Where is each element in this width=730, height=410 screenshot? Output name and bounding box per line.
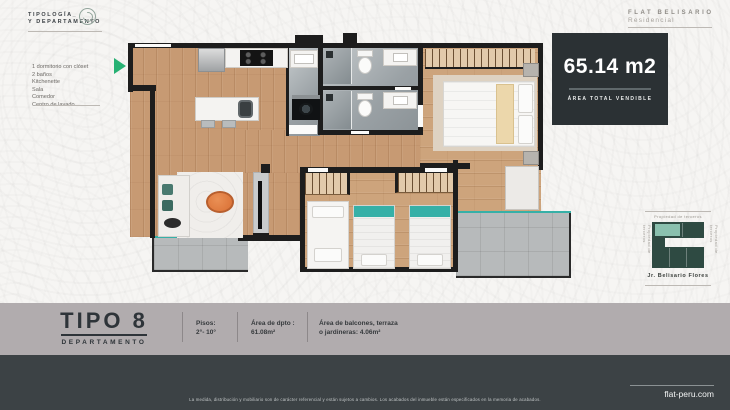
bed-throw	[496, 84, 514, 144]
poster: TIPOLOGÍA_ Y DEPARTAMENTO 1 dormitorio c…	[0, 0, 730, 410]
spec-value: 61.08m²	[251, 328, 295, 337]
list-item: Sala	[32, 87, 88, 95]
spec-label: Área de dpto :	[251, 319, 295, 328]
list-item: 2 baños	[32, 72, 88, 80]
list-item: Kitchenette	[32, 79, 88, 87]
total-area-caption: ÁREA TOTAL VENDIBLE	[552, 96, 668, 102]
shower	[323, 91, 352, 129]
closet	[395, 173, 453, 193]
wall-segment	[318, 130, 420, 135]
type-subtitle: DEPARTAMENTO	[58, 339, 150, 346]
pillow	[361, 254, 387, 266]
blanket	[314, 248, 342, 262]
footer-dark-band: La medida, distribución y mobiliario son…	[0, 355, 730, 410]
toilet	[356, 50, 374, 76]
door-opening	[135, 44, 171, 47]
cushion	[162, 200, 173, 211]
toilet-tank	[357, 50, 373, 57]
toilet-bowl	[358, 57, 372, 74]
bed-headboard	[354, 206, 394, 217]
website-rule	[630, 385, 714, 386]
building-footprint	[652, 222, 704, 268]
island-sink	[238, 100, 253, 118]
key-map-rule-bottom	[645, 285, 711, 286]
footer-type-band: TIPO 8 DEPARTAMENTO Pisos: 2°- 10° Área …	[0, 303, 730, 355]
spec-balcony-area: Área de balcones, terraza o jardineras: …	[319, 319, 398, 337]
wall-segment	[343, 33, 357, 48]
sink-basin	[393, 96, 408, 105]
pillow	[518, 115, 533, 144]
sink-basin	[393, 53, 408, 62]
washer-door	[299, 103, 313, 115]
pillow	[518, 84, 533, 113]
shower-fixture	[326, 94, 333, 101]
floor-plan	[113, 33, 575, 281]
master-bed	[443, 81, 535, 147]
balcony-floor	[152, 236, 248, 272]
key-map-right-label: Propiedad de terceros	[709, 225, 719, 269]
wall-segment	[150, 88, 155, 238]
door-opening	[351, 131, 369, 134]
wall-segment	[253, 233, 269, 239]
type-title-rule	[61, 334, 147, 336]
building-bottom-wing	[652, 247, 704, 268]
door-opening	[395, 87, 411, 90]
disclaimer-text: La medida, distribución y mobiliario son…	[0, 397, 730, 402]
stove-cooktop	[240, 50, 273, 66]
unit-divider	[686, 248, 687, 267]
spec-value: 2°- 10°	[196, 328, 216, 337]
laundry-sink-basin	[294, 54, 314, 64]
key-map-rule-top	[645, 211, 711, 212]
spec-value: o jardineras: 4.06m²	[319, 328, 398, 337]
bathroom-sink	[383, 49, 417, 66]
single-bed	[409, 205, 451, 269]
wall-segment	[238, 235, 305, 241]
pillow	[312, 206, 344, 218]
shower-fixture	[326, 51, 333, 58]
nightstand	[523, 151, 539, 165]
nightstand	[523, 63, 539, 77]
brand-block: FLAT BELISARIO Residencial	[628, 10, 714, 28]
list-item: Comedor	[32, 94, 88, 102]
toilet-bowl	[358, 100, 372, 117]
type-block: TIPO 8 DEPARTAMENTO	[58, 309, 150, 346]
shower	[323, 48, 352, 84]
brand-stamp-icon	[79, 8, 96, 25]
area-box: 65.14 m2 ÁREA TOTAL VENDIBLE	[552, 33, 668, 125]
fridge	[198, 48, 225, 72]
website-link[interactable]: flat-peru.com	[630, 389, 714, 399]
door-opening	[308, 168, 328, 172]
brand-subtitle: Residencial	[628, 17, 714, 24]
toilet	[356, 93, 374, 119]
brand-name: FLAT BELISARIO	[628, 10, 714, 16]
unit-divider	[682, 223, 683, 237]
area-box-rule	[569, 88, 651, 90]
spec-apartment-area: Área de dpto : 61.08m²	[251, 319, 295, 337]
sofa	[158, 175, 190, 237]
location-key-map: Propiedad de terceros Propiedad de terce…	[640, 205, 716, 295]
wall-segment	[261, 164, 270, 173]
door-opening	[289, 125, 317, 134]
cushion	[162, 184, 173, 195]
daybed	[307, 201, 349, 269]
tv	[258, 181, 262, 229]
master-closet	[425, 49, 535, 69]
stool	[201, 120, 215, 128]
toilet-tank	[357, 93, 373, 100]
street-label: Jr. Belisario Flores	[640, 273, 716, 279]
spec-label: Pisos:	[196, 319, 216, 328]
spec-label: Área de balcones, terraza	[319, 319, 398, 328]
stamp-swirl-icon	[81, 10, 95, 24]
key-map-top-label: Propiedad de terceros	[640, 214, 716, 219]
list-item: 1 dormitorio con clóset	[32, 64, 88, 72]
bathroom-sink	[383, 92, 417, 109]
spec-divider	[237, 312, 238, 342]
spec-divider	[182, 312, 183, 342]
spec-divider	[307, 312, 308, 342]
pillow	[417, 254, 443, 266]
unit-divider	[669, 248, 670, 267]
cat	[164, 218, 181, 228]
wall-segment	[453, 160, 458, 272]
single-bed	[353, 205, 395, 269]
feature-list: 1 dormitorio con clóset 2 baños Kitchene…	[32, 64, 88, 110]
tv-panel	[253, 172, 269, 238]
stool	[222, 120, 236, 128]
highlighted-unit	[655, 224, 680, 236]
terrace-edge	[456, 211, 571, 213]
feature-rule	[36, 105, 100, 106]
type-title: TIPO 8	[58, 309, 150, 333]
cabinet	[505, 166, 539, 210]
door-opening	[425, 168, 447, 172]
closet	[305, 173, 350, 195]
door-opening	[418, 105, 423, 127]
washing-machine	[292, 95, 320, 120]
key-map-left-label: Propiedad de terceros	[642, 225, 652, 269]
spec-floors: Pisos: 2°- 10°	[196, 319, 216, 337]
coffee-table	[206, 191, 234, 213]
total-area-value: 65.14 m2	[552, 55, 668, 79]
brand-rule	[628, 27, 712, 28]
bed-headboard	[410, 206, 450, 217]
typology-rule	[28, 31, 102, 32]
terrace-floor	[456, 211, 571, 278]
